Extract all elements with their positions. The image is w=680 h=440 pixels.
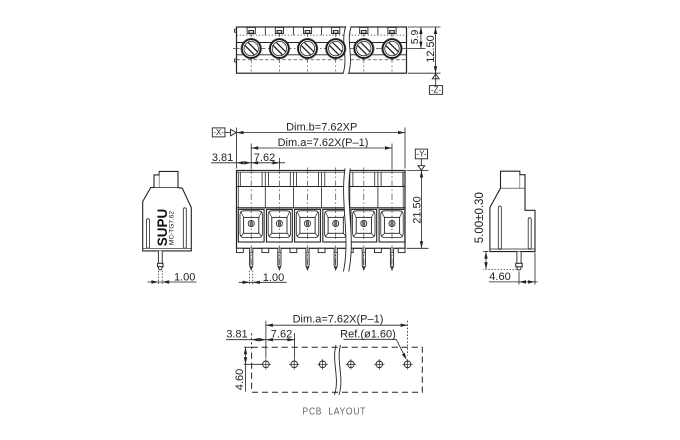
svg-text:4.60: 4.60 (234, 369, 246, 390)
svg-text:Dim.a=7.62X(P–1): Dim.a=7.62X(P–1) (293, 313, 384, 325)
svg-text:-Z-: -Z- (431, 86, 442, 95)
svg-text:3.81: 3.81 (212, 152, 233, 164)
svg-text:Dim.a=7.62X(P–1): Dim.a=7.62X(P–1) (278, 137, 369, 149)
svg-text:PCB LAYOUT: PCB LAYOUT (303, 407, 367, 418)
svg-text:Dim.b=7.62XP: Dim.b=7.62XP (286, 122, 357, 134)
svg-text:SUPU: SUPU (155, 209, 170, 247)
svg-text:5.9: 5.9 (409, 29, 421, 44)
svg-text:4.60: 4.60 (489, 271, 510, 283)
svg-text:-X-: -X- (213, 128, 224, 137)
svg-text:5.00±0.30: 5.00±0.30 (474, 192, 486, 243)
svg-text:7.62: 7.62 (254, 152, 275, 164)
svg-text:MC-TG7.62: MC-TG7.62 (169, 211, 176, 245)
svg-text:1.00: 1.00 (263, 272, 284, 284)
svg-text:3.81: 3.81 (226, 329, 247, 341)
svg-text:7.62: 7.62 (271, 329, 292, 341)
svg-text:-Y-: -Y- (416, 150, 426, 159)
svg-text:Ref.(ø1.60): Ref.(ø1.60) (340, 329, 396, 341)
svg-text:12.50: 12.50 (425, 35, 437, 63)
svg-text:1.00: 1.00 (174, 271, 195, 283)
svg-text:21.50: 21.50 (411, 196, 423, 224)
